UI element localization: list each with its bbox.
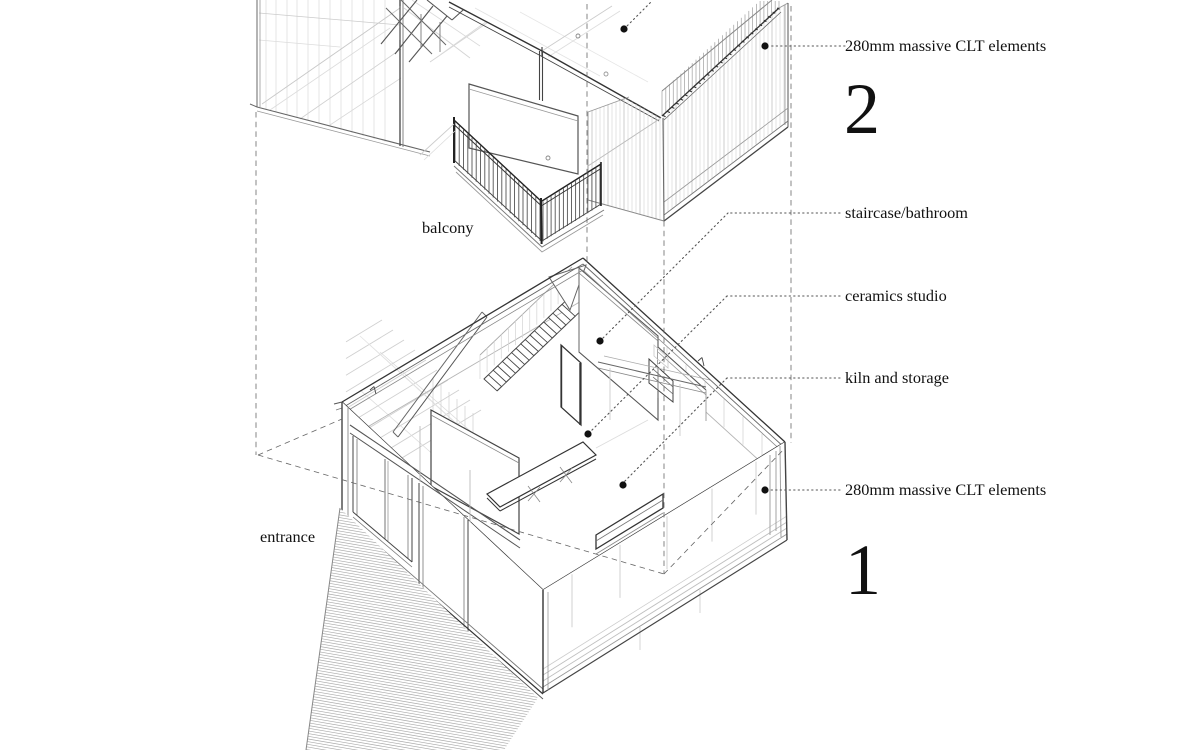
svg-text:1: 1 (845, 530, 881, 610)
svg-text:balcony: balcony (422, 218, 474, 237)
svg-text:kiln and storage: kiln and storage (845, 368, 949, 387)
svg-text:entrance: entrance (260, 527, 315, 546)
svg-text:280mm massive CLT elements: 280mm massive CLT elements (845, 480, 1046, 499)
svg-text:2: 2 (844, 69, 880, 149)
svg-text:ceramics studio: ceramics studio (845, 286, 947, 305)
svg-text:280mm massive CLT elements: 280mm massive CLT elements (845, 36, 1046, 55)
svg-text:staircase/bathroom: staircase/bathroom (845, 203, 968, 222)
